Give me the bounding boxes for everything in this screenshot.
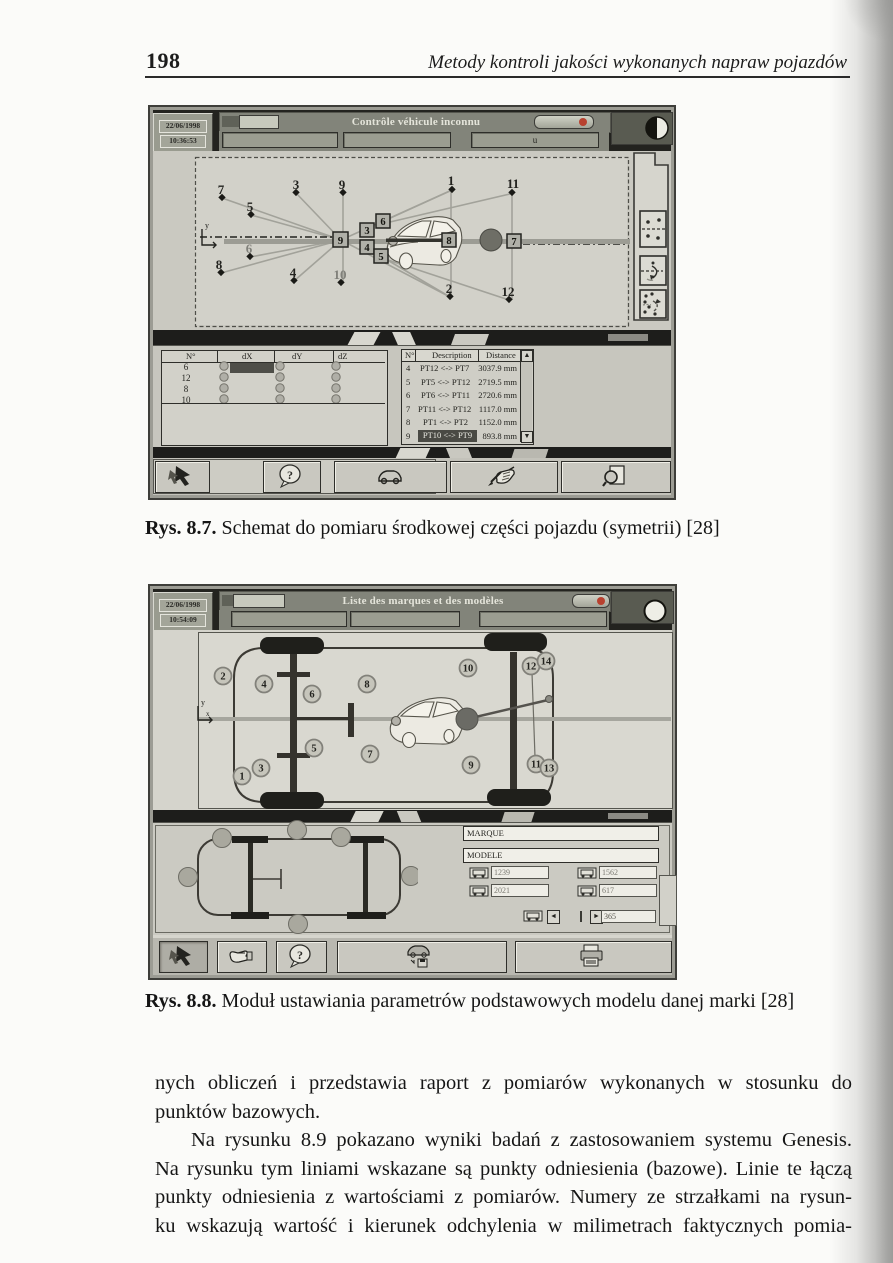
svg-text:2: 2: [446, 281, 453, 296]
svg-text:4: 4: [364, 243, 370, 254]
svg-text:10: 10: [463, 664, 474, 675]
svg-text:y: y: [205, 221, 209, 230]
svg-text:5: 5: [378, 252, 383, 263]
svg-text:y: y: [201, 698, 205, 707]
svg-text:9: 9: [338, 235, 344, 247]
svg-text:3: 3: [293, 177, 300, 192]
svg-text:5: 5: [247, 199, 254, 214]
svg-text:2: 2: [220, 672, 225, 683]
svg-text:8: 8: [216, 257, 223, 272]
svg-text:12: 12: [526, 662, 537, 673]
svg-text:4: 4: [290, 265, 297, 280]
svg-text:4: 4: [261, 680, 267, 691]
svg-text:11: 11: [507, 176, 519, 191]
svg-text:3: 3: [364, 226, 369, 237]
svg-text:13: 13: [544, 764, 555, 775]
svg-text:3: 3: [258, 764, 263, 775]
svg-text:6: 6: [380, 217, 385, 228]
svg-text:7: 7: [367, 750, 372, 761]
svg-text:8: 8: [446, 236, 451, 247]
svg-text:9: 9: [468, 761, 473, 772]
svg-text:11: 11: [531, 760, 541, 771]
svg-text:x: x: [206, 710, 210, 718]
svg-text:5: 5: [311, 744, 316, 755]
svg-text:1: 1: [448, 173, 455, 188]
svg-text:6: 6: [246, 241, 253, 256]
svg-text:7: 7: [511, 237, 516, 248]
svg-text:8: 8: [364, 680, 369, 691]
svg-text:9: 9: [339, 177, 346, 192]
svg-text:1: 1: [239, 772, 244, 783]
svg-text:?: ?: [287, 468, 293, 482]
svg-text:?: ?: [297, 948, 303, 962]
svg-text:12: 12: [502, 284, 515, 299]
svg-text:6: 6: [309, 690, 314, 701]
svg-text:14: 14: [541, 657, 552, 668]
svg-text:7: 7: [218, 182, 225, 197]
svg-text:10: 10: [334, 267, 347, 282]
